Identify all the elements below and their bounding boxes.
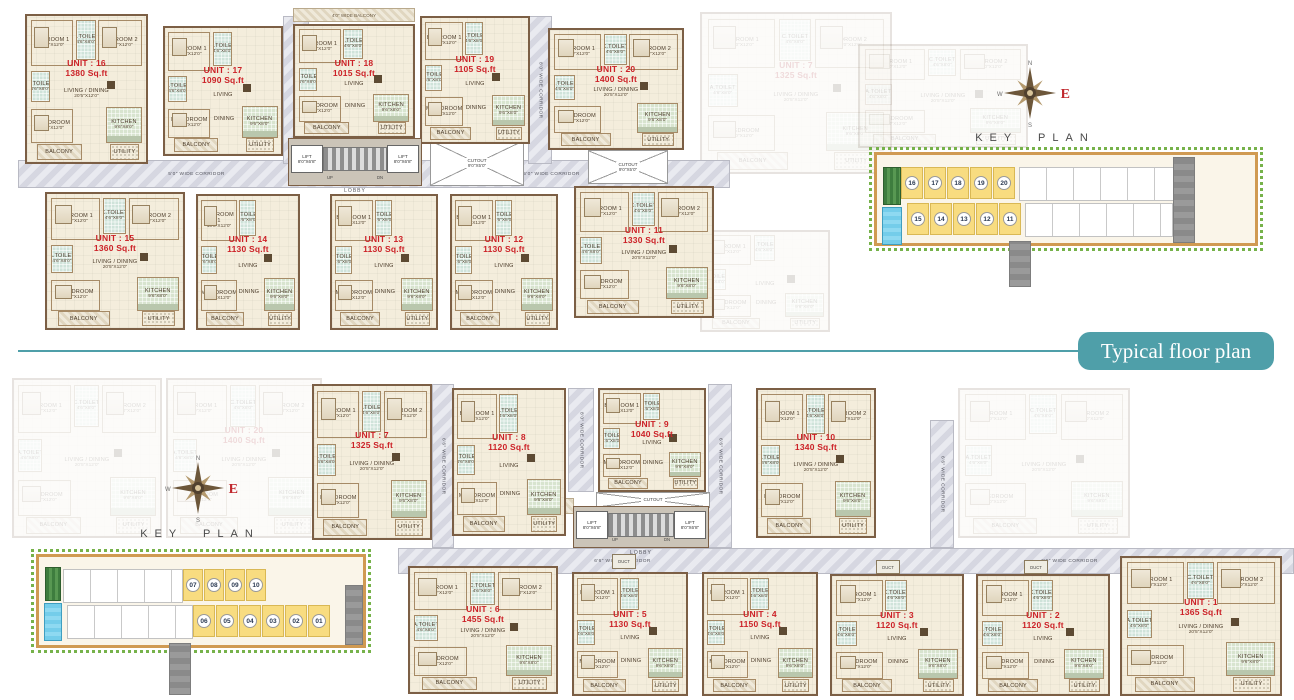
room-attached-toilet: A.TOILET4'6"X8'0"	[965, 445, 992, 476]
room-kitchen: KITCHEN9'6"X8'0"	[242, 106, 278, 138]
room-kitchen: KITCHEN9'6"X8'0"	[110, 477, 155, 516]
lawn	[45, 567, 61, 601]
room-common-toilet: C.TOILET4'6"X8'0"	[343, 29, 363, 59]
room-kitchen: KITCHEN9'6"X8'0"	[835, 481, 871, 518]
unit-label: UNIT : 191105 Sq.ft	[422, 54, 528, 74]
keyplan-units-row: 1617181920	[901, 167, 1015, 199]
lobby-label: LOBBY	[289, 188, 421, 194]
keyplan-site-top: 1617181920 1514131211	[874, 152, 1258, 246]
room-utility: UTILITY	[673, 478, 698, 489]
unit-label: UNIT : 71325 Sq.ft	[314, 430, 430, 450]
room-balcony: BALCONY	[873, 134, 936, 145]
compass-north: N	[196, 456, 200, 462]
unit-floor-plan: BEDROOM 110'0"X12'0" C.TOILET4'6"X8'0" B…	[450, 194, 558, 330]
keyplan-building-units	[1025, 203, 1173, 237]
corridor-vertical-bottom-2: 8'0" WIDE CORRIDOR	[568, 388, 594, 492]
corridor-vertical-bottom-3: 6'6" WIDE CORRIDOR	[708, 384, 732, 548]
entrance-road	[1009, 241, 1031, 287]
room-living-dining: LIVING / DINING20'5"X12'0"	[1160, 615, 1242, 645]
keyplan-unit-number: 08	[207, 578, 221, 592]
lift-stair-core-bottom: LIFT 8'0"X6'8" LIFT 8'0"X6'8" UP DN LOBB…	[573, 506, 709, 548]
room-common-toilet: C.TOILET4'6"X8'0"	[632, 192, 655, 227]
duct-box: DUCT	[876, 560, 900, 574]
room-common-toilet: C.TOILET4'6"X8'0"	[885, 580, 907, 612]
unit-label: UNIT : 171090 Sq.ft	[165, 65, 281, 85]
unit-floor-plan: BEDROOM 110'0"X12'0" C.TOILET4'6"X8'0" B…	[1120, 556, 1282, 696]
swimming-pool	[882, 207, 902, 245]
keyplan-unit-06: 06	[193, 605, 215, 637]
room-master-bedroom: M.BEDROOM11'0"X12'0"	[865, 110, 925, 133]
keyplan-unit-16: 16	[901, 167, 923, 199]
unit-floor-plan: BEDROOM 110'0"X12'0" C.TOILET4'6"X8'0" B…	[598, 388, 706, 492]
lawn	[883, 167, 901, 205]
keyplan-unit-number: 10	[249, 578, 263, 592]
room-living-dining: LIVING	[222, 251, 274, 280]
room-common-toilet: C.TOILET4'6"X8'0"	[375, 200, 393, 236]
room-balcony: BALCONY	[460, 312, 500, 327]
room-kitchen: KITCHEN9'6"X8'0"	[268, 477, 315, 516]
keyplan-unit-15: 15	[907, 203, 929, 235]
room-utility: UTILITY	[405, 312, 430, 327]
unit-label: UNIT : 21120 Sq.ft	[978, 610, 1108, 630]
room-common-toilet: C.TOILET4'6"X8'0"	[103, 198, 126, 234]
compass-west: W	[165, 487, 171, 493]
room-dining: DINING	[884, 654, 913, 669]
corridor-label: 6'6" WIDE CORRIDOR	[940, 456, 945, 512]
unit-floor-plan: BEDROOM 110'0"X12'0" C.TOILET4'6"X8'0" B…	[756, 388, 876, 538]
lift-dim: 8'0"X6'8"	[583, 525, 601, 531]
room-kitchen: KITCHEN9'6"X8'0"	[1226, 642, 1275, 676]
keyplan-unit-number: 07	[186, 578, 200, 592]
cutout-area-top-1: CUTOUT 9'0"X5'0"	[430, 140, 524, 186]
keyplan-unit-04: 04	[239, 605, 261, 637]
keyplan-unit-number: 14	[934, 212, 948, 226]
compass-west: W	[997, 92, 1003, 98]
room-common-toilet: C.TOILET4'6"X8'0"	[465, 22, 483, 55]
room-balcony: BALCONY	[587, 300, 639, 314]
unit-floor-plan: BEDROOM 110'0"X12'0" C.TOILET4'6"X8'0" B…	[420, 16, 530, 144]
room-utility: UTILITY	[496, 127, 521, 141]
unit-floor-plan: BEDROOM 110'0"X12'0" C.TOILET4'6"X8'0" B…	[312, 384, 432, 540]
room-balcony: BALCONY	[340, 312, 380, 327]
room-utility: UTILITY	[110, 144, 139, 160]
room-living-dining: LIVING / DINING20'5"X12'0"	[80, 250, 151, 279]
room-utility: UTILITY	[246, 138, 274, 152]
keyplan-unit-number: 02	[289, 614, 303, 628]
compass-south: S	[1028, 123, 1032, 129]
room-balcony: BALCONY	[583, 679, 626, 692]
keyplan-unit-18: 18	[947, 167, 969, 199]
corridor-label: 6'6" WIDE CORRIDOR	[1041, 559, 1097, 564]
room-dining: DINING	[752, 297, 780, 310]
room-living-dining: LIVING / DINING20'5"X12'0"	[747, 80, 845, 115]
room-balcony: BALCONY	[323, 519, 367, 536]
unit-label: UNIT : 121130 Sq.ft	[452, 234, 556, 254]
room-dining: DINING	[498, 485, 522, 504]
lobby-label: LOBBY	[574, 550, 708, 556]
unit-floor-plan: BEDROOM 110'0"X12'0" C.TOILET4'6"X8'0" B…	[452, 388, 566, 536]
room-master-bedroom: M.BEDROOM11'0"X12'0"	[455, 280, 492, 310]
room-master-bedroom: M.BEDROOM11'0"X12'0"	[457, 482, 497, 515]
corridor-label: 8'0" WIDE CORRIDOR	[579, 412, 584, 468]
keyplan-unit-number: 17	[928, 176, 942, 190]
keyplan-building-units	[63, 569, 183, 603]
room-master-bedroom: M.BEDROOM11'0"X12'0"	[554, 106, 602, 133]
room-utility: UTILITY	[1069, 679, 1100, 692]
keyplan-unit-number: 18	[951, 176, 965, 190]
room-living-dining: LIVING	[477, 251, 531, 280]
corridor-vertical-bottom-1: 6'6" WIDE CORRIDOR	[432, 384, 454, 548]
keyplan-unit-number: 15	[911, 212, 925, 226]
room-utility: UTILITY	[142, 311, 175, 326]
room-dining: DINING	[211, 111, 237, 127]
room-balcony: BALCONY	[973, 518, 1037, 534]
unit-floor-plan: BEDROOM 110'0"X12'0" C.TOILET4'6"X8'0" B…	[830, 574, 964, 696]
keyplan-unit-number: 01	[312, 614, 326, 628]
room-kitchen: KITCHEN9'6"X8'0"	[637, 103, 678, 133]
room-kitchen: KITCHEN9'6"X8'0"	[666, 267, 708, 299]
room-balcony: BALCONY	[463, 516, 505, 532]
keyplan-unit-number: 20	[997, 176, 1011, 190]
room-master-bedroom: M.BEDROOM11'0"X12'0"	[31, 109, 74, 143]
keyplan-unit-08: 08	[204, 569, 224, 601]
keyplan-unit-12: 12	[976, 203, 998, 235]
room-dining: DINING	[749, 653, 774, 669]
unit-floor-plan: BEDROOM 110'0"X12'0" C.TOILET4'6"X8'0" B…	[958, 388, 1130, 538]
room-bedroom-1: BEDROOM 110'0"X12'0"	[18, 385, 71, 433]
room-common-toilet: C.TOILET4'6"X8'0"	[754, 235, 775, 261]
cutout-dim: 9'0"X5'0"	[466, 163, 488, 168]
room-common-toilet: C.TOILET4'6"X8'0"	[1031, 580, 1053, 612]
room-utility: UTILITY	[790, 318, 820, 329]
duct-label: DUCT	[1030, 565, 1042, 570]
staircase	[608, 513, 674, 537]
unit-label: UNIT : 201400 Sq.ft	[550, 64, 682, 84]
lift-dim: 8'0"X6'8"	[298, 159, 316, 165]
keyplan-unit-02: 02	[285, 605, 307, 637]
lift-stair-core-top: LIFT 8'0"X6'8" LIFT 8'0"X6'8" UP DN LOBB…	[288, 138, 422, 186]
floor-plan-sheet: 5'0" WIDE CORRIDOR 5'0" WIDE CORRIDOR 8'…	[0, 0, 1294, 700]
room-balcony: BALCONY	[842, 679, 891, 692]
unit-label: UNIT : 141130 Sq.ft	[198, 234, 298, 254]
page-title-banner: Typical floor plan	[1078, 332, 1274, 370]
wide-balcony-label: 4'0" WIDE BALCONY	[332, 13, 376, 18]
duct-box: DUCT	[612, 554, 636, 569]
unit-floor-plan: BEDROOM 110'0"X12'0" C.TOILET4'6"X8'0" B…	[25, 14, 148, 164]
room-utility: UTILITY	[923, 679, 954, 692]
room-common-toilet: C.TOILET4'6"X8'0"	[499, 394, 518, 433]
section-divider	[18, 350, 1080, 352]
room-utility: UTILITY	[671, 300, 704, 314]
room-balcony: BALCONY	[430, 127, 470, 141]
room-balcony: BALCONY	[422, 677, 477, 691]
room-common-toilet: C.TOILET4'6"X8'0"	[213, 32, 233, 66]
keyplan-unit-07: 07	[183, 569, 203, 601]
room-balcony: BALCONY	[37, 144, 82, 160]
room-attached-toilet: A.TOILET4'6"X8'0"	[865, 84, 892, 105]
room-utility: UTILITY	[378, 122, 406, 134]
room-bedroom-1: BEDROOM 110'0"X12'0"	[865, 49, 925, 80]
keyplan-title-bottom: KEY PLAN	[120, 528, 280, 540]
room-living-dining: LIVING	[447, 70, 502, 97]
lift-left: LIFT 8'0"X6'8"	[291, 145, 323, 173]
compass-rose: N S W E	[168, 458, 228, 522]
room-dining: DINING	[238, 283, 260, 300]
keyplan-unit-14: 14	[930, 203, 952, 235]
duct-box: DUCT	[1024, 560, 1048, 574]
keyplan-unit-11: 11	[999, 203, 1021, 235]
cutout-dim: 9'0"X5'0"	[617, 167, 639, 172]
unit-floor-plan: BEDROOM 110'0"X12'0" C.TOILET4'6"X8'0" B…	[196, 194, 300, 330]
room-kitchen: KITCHEN9'6"X8'0"	[648, 648, 683, 678]
room-common-toilet: C.TOILET4'6"X8'0"	[1187, 562, 1214, 599]
room-bedroom-1: BEDROOM 110'0"X12'0"	[965, 394, 1025, 439]
room-utility: UTILITY	[268, 312, 292, 327]
room-kitchen: KITCHEN9'6"X8'0"	[1064, 649, 1104, 679]
room-kitchen: KITCHEN9'6"X8'0"	[137, 277, 179, 311]
room-master-bedroom: M.BEDROOM11'0"X12'0"	[299, 96, 341, 121]
keyplan-unit-13: 13	[953, 203, 975, 235]
room-balcony: BALCONY	[26, 517, 81, 534]
stairs-up-label: UP	[612, 537, 618, 542]
unit-label: UNIT : 31120 Sq.ft	[832, 610, 962, 630]
room-utility: UTILITY	[531, 516, 557, 532]
room-kitchen: KITCHEN9'6"X8'0"	[401, 278, 433, 311]
room-living-dining: LIVING / DINING20'5"X12'0"	[609, 242, 680, 270]
unit-floor-plan: BEDROOM 110'0"X12'0" C.TOILET4'6"X8'0" B…	[163, 26, 283, 156]
room-common-toilet: C.TOILET4'6"X8'0"	[806, 394, 826, 433]
room-common-toilet: C.TOILET4'6"X8'0"	[779, 19, 811, 62]
unit-floor-plan: BEDROOM 110'0"X12'0" C.TOILET4'6"X8'0" B…	[574, 186, 714, 318]
room-dining: DINING	[464, 100, 487, 116]
keyplan-unit-05: 05	[216, 605, 238, 637]
room-kitchen: KITCHEN9'6"X8'0"	[778, 648, 813, 678]
room-kitchen: KITCHEN9'6"X8'0"	[521, 278, 553, 311]
road	[345, 585, 363, 645]
keyplan-unit-19: 19	[970, 167, 992, 199]
room-living-dining: LIVING / DINING20'5"X12'0"	[56, 77, 118, 109]
room-utility: UTILITY	[395, 519, 423, 536]
keyplan-units-row: 07080910	[183, 569, 266, 601]
unit-label: UNIT : 41150 Sq.ft	[704, 609, 816, 629]
lift-right: LIFT 8'0"X6'8"	[387, 145, 419, 173]
room-common-toilet: C.TOILET4'6"X8'0"	[928, 49, 956, 76]
lift-right: LIFT 8'0"X6'8"	[674, 511, 706, 539]
page-title: Typical floor plan	[1101, 339, 1251, 364]
unit-label: UNIT : 201400 Sq.ft	[168, 425, 320, 445]
swimming-pool	[44, 603, 62, 641]
compass-east: E	[229, 482, 238, 498]
room-balcony: BALCONY	[988, 679, 1037, 692]
unit-floor-plan: BEDROOM 110'0"X12'0" C.TOILET4'6"X8'0" B…	[293, 24, 415, 138]
corridor-label: 6'6" WIDE CORRIDOR	[441, 438, 446, 494]
room-living-dining: LIVING	[732, 273, 798, 295]
room-living-dining: LIVING / DINING20'5"X12'0"	[342, 450, 402, 483]
staircase	[323, 147, 387, 171]
room-dining: DINING	[342, 99, 368, 113]
room-utility: UTILITY	[839, 518, 867, 534]
lift-left: LIFT 8'0"X6'8"	[576, 511, 608, 539]
room-dining: DINING	[1030, 654, 1059, 669]
room-kitchen: KITCHEN9'6"X8'0"	[669, 452, 701, 477]
keyplan-site-bottom: 07080910 060504030201	[36, 554, 366, 648]
unit-floor-plan: BEDROOM 110'0"X12'0" C.TOILET4'6"X8'0" B…	[12, 378, 162, 538]
unit-label: UNIT : 11365 Sq.ft	[1122, 597, 1280, 617]
room-dining: DINING	[642, 456, 665, 469]
keyplan-unit-number: 06	[197, 614, 211, 628]
unit-label: UNIT : 111330 Sq.ft	[576, 225, 712, 245]
unit-floor-plan: BEDROOM 110'0"X12'0" C.TOILET4'6"X8'0" B…	[330, 194, 438, 330]
unit-floor-plan: BEDROOM 110'0"X12'0" C.TOILET4'6"X8'0" B…	[702, 572, 818, 696]
unit-label: UNIT : 161380 Sq.ft	[27, 58, 146, 78]
keyplan-units-row: 060504030201	[193, 605, 330, 637]
room-master-bedroom: M.BEDROOM11'0"X12'0"	[335, 280, 372, 310]
room-balcony: BALCONY	[1135, 677, 1195, 692]
unit-label: UNIT : 91040 Sq.ft	[600, 419, 704, 439]
room-dining: DINING	[494, 283, 517, 300]
room-kitchen: KITCHEN9'6"X8'0"	[264, 278, 295, 311]
duct-label: DUCT	[882, 565, 894, 570]
room-bedroom-2: BEDROOM 210'0"X12'0"	[102, 385, 156, 433]
unit-label: UNIT : 131130 Sq.ft	[332, 234, 436, 254]
room-living-dining: LIVING / DINING20'5"X12'0"	[786, 451, 846, 483]
lift-dim: 8'0"X6'8"	[394, 159, 412, 165]
keyplan-unit-10: 10	[246, 569, 266, 601]
keyplan-unit-number: 11	[1003, 212, 1017, 226]
room-common-toilet: C.TOILET4'6"X8'0"	[620, 578, 639, 610]
room-living-dining: LIVING	[480, 450, 537, 482]
keyplan-building-units	[67, 605, 193, 639]
entrance-road	[169, 643, 191, 695]
compass-rose: N S W E	[1000, 63, 1060, 127]
keyplan-unit-number: 19	[974, 176, 988, 190]
duct-label: DUCT	[618, 559, 630, 564]
room-utility: UTILITY	[525, 312, 550, 327]
room-master-bedroom: M.BEDROOM11'0"X12'0"	[414, 647, 467, 676]
keyplan-unit-number: 16	[905, 176, 919, 190]
stairs-down-label: DN	[664, 537, 670, 542]
unit-label: UNIT : 101340 Sq.ft	[758, 432, 874, 452]
room-common-toilet: C.TOILET4'6"X8'0"	[604, 34, 626, 66]
room-master-bedroom: M.BEDROOM11'0"X12'0"	[1127, 645, 1184, 676]
room-utility: UTILITY	[652, 679, 679, 692]
unit-label: UNIT : 81120 Sq.ft	[454, 432, 564, 452]
unit-label: UNIT : 151360 Sq.ft	[47, 233, 183, 253]
room-common-toilet: C.TOILET4'6"X8'0"	[74, 385, 99, 427]
unit-label: UNIT : 61455 Sq.ft	[410, 604, 556, 624]
room-attached-toilet: A.TOILET4'6"X8'0"	[18, 439, 41, 472]
room-utility: UTILITY	[512, 677, 547, 691]
room-kitchen: KITCHEN9'6"X8'0"	[527, 479, 561, 515]
keyplan-unit-number: 13	[957, 212, 971, 226]
room-kitchen: KITCHEN9'6"X8'0"	[106, 107, 143, 144]
room-living-dining: LIVING / DINING20'5"X12'0"	[900, 88, 986, 110]
room-common-toilet: C.TOILET4'6"X8'0"	[239, 200, 256, 236]
room-balcony: BALCONY	[561, 133, 611, 146]
room-master-bedroom: M.BEDROOM11'0"X12'0"	[707, 651, 747, 679]
room-utility: UTILITY	[1078, 518, 1118, 534]
room-balcony: BALCONY	[608, 478, 648, 489]
room-master-bedroom: M.BEDROOM11'0"X12'0"	[708, 115, 776, 151]
room-living-dining: LIVING	[357, 251, 411, 280]
room-common-toilet: C.TOILET4'6"X8'0"	[470, 572, 495, 605]
wide-balcony-strip: 4'0" WIDE BALCONY	[293, 8, 415, 22]
compass-east: E	[1061, 87, 1070, 103]
cutout-label: CUTOUT	[641, 497, 664, 502]
room-dining: DINING	[374, 283, 397, 300]
keyplan-unit-number: 09	[228, 578, 242, 592]
room-balcony: BALCONY	[304, 122, 349, 134]
lift-dim: 8'0"X6'8"	[681, 525, 699, 531]
room-common-toilet: C.TOILET4'6"X8'0"	[230, 385, 256, 427]
corridor-label: 8'0" WIDE CORRIDOR	[538, 62, 543, 118]
unit-label: UNIT : 51130 Sq.ft	[574, 609, 686, 629]
corridor-label: 5'0" WIDE CORRIDOR	[168, 172, 224, 177]
unit-floor-plan: BEDROOM 110'0"X12'0" C.TOILET4'6"X8'0" B…	[548, 28, 684, 150]
keyplan-unit-17: 17	[924, 167, 946, 199]
room-kitchen: KITCHEN9'6"X8'0"	[373, 94, 410, 122]
room-balcony: BALCONY	[767, 518, 811, 534]
unit-label: UNIT : 181015 Sq.ft	[295, 58, 413, 78]
room-kitchen: KITCHEN9'6"X8'0"	[785, 293, 824, 318]
keyplan-unit-09: 09	[225, 569, 245, 601]
room-living-dining: LIVING / DINING20'5"X12'0"	[445, 620, 521, 647]
room-living-dining: LIVING	[193, 81, 253, 109]
room-living-dining: LIVING / DINING20'5"X12'0"	[1000, 451, 1087, 483]
compass-south: S	[196, 518, 200, 524]
keyplan-unit-20: 20	[993, 167, 1015, 199]
room-bedroom-2: BEDROOM 210'0"X12'0"	[1061, 394, 1123, 439]
room-common-toilet: C.TOILET4'6"X8'0"	[643, 393, 661, 420]
room-balcony: BALCONY	[206, 312, 244, 327]
room-master-bedroom: M.BEDROOM11'0"X12'0"	[965, 483, 1025, 517]
keyplan-unit-number: 04	[243, 614, 257, 628]
room-common-toilet: C.TOILET4'6"X8'0"	[76, 20, 96, 59]
keyplan-unit-number: 05	[220, 614, 234, 628]
room-utility: UTILITY	[834, 152, 879, 169]
room-utility: UTILITY	[1233, 677, 1271, 692]
corridor-label: 5'0" WIDE CORRIDOR	[523, 172, 579, 177]
keyplan-unit-number: 12	[980, 212, 994, 226]
room-master-bedroom: M.BEDROOM11'0"X12'0"	[761, 483, 803, 517]
unit-floor-plan: BEDROOM 110'0"X12'0" C.TOILET4'6"X8'0" B…	[700, 230, 830, 332]
keyplan-unit-01: 01	[308, 605, 330, 637]
room-balcony: BALCONY	[58, 311, 110, 326]
room-balcony: BALCONY	[712, 318, 760, 329]
room-master-bedroom: M.BEDROOM11'0"X12'0"	[425, 97, 463, 126]
keyplan-unit-03: 03	[262, 605, 284, 637]
keyplan-title-top: KEY PLAN	[955, 132, 1115, 144]
room-master-bedroom: M.BEDROOM11'0"X12'0"	[168, 109, 210, 138]
room-kitchen: KITCHEN9'6"X8'0"	[1071, 481, 1123, 518]
cutout-area-top-2: CUTOUT 9'0"X5'0"	[588, 150, 668, 184]
room-common-toilet: C.TOILET4'6"X8'0"	[1029, 394, 1058, 433]
room-living-dining: LIVING / DINING20'5"X12'0"	[49, 446, 125, 480]
room-master-bedroom: M.BEDROOM11'0"X12'0"	[51, 280, 100, 311]
room-master-bedroom: M.BEDROOM11'0"X12'0"	[201, 280, 237, 310]
room-balcony: BALCONY	[713, 679, 756, 692]
compass-north: N	[1028, 61, 1032, 67]
room-master-bedroom: M.BEDROOM11'0"X12'0"	[317, 483, 359, 518]
compass-star	[1000, 63, 1060, 123]
room-common-toilet: C.TOILET4'6"X8'0"	[495, 200, 513, 236]
compass-star	[168, 458, 228, 518]
room-common-toilet: C.TOILET4'6"X8'0"	[362, 391, 382, 432]
road	[1173, 157, 1195, 243]
unit-floor-plan: BEDROOM 110'0"X12'0" C.TOILET4'6"X8'0" B…	[408, 566, 558, 694]
corridor-vertical-bottom-4: 6'6" WIDE CORRIDOR	[930, 420, 954, 548]
stairs-down-label: DN	[377, 175, 383, 180]
